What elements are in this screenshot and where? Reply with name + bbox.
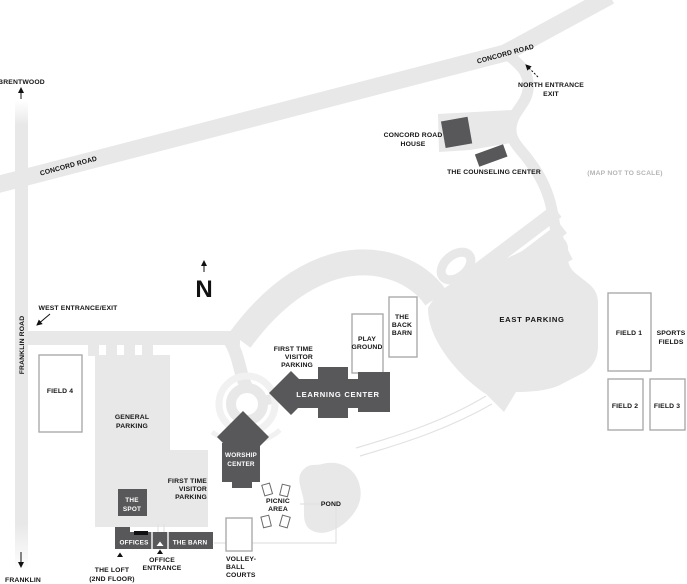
offices-label: OFFICES [119,540,149,547]
general-parking-label-2: PARKING [116,423,148,430]
map-note: (MAP NOT TO SCALE) [587,170,662,177]
ftv-north-label-2: VISITOR [285,354,313,361]
parking-stub [124,343,135,356]
ftv-south-label-2: VISITOR [179,486,207,493]
concord-house-label-1: CONCORD ROAD [384,132,443,139]
counseling-center-label: THE COUNSELING CENTER [447,169,541,176]
office-entrance-label-2: ENTRANCE [143,565,182,572]
field1-label: FIELD 1 [616,330,642,337]
back-barn-label-3: BARN [392,330,412,337]
brentwood-label: BRENTWOOD [0,79,45,86]
campus-map: BRENTWOOD FRANKLIN CONCORD ROAD CONCORD … [0,0,687,584]
office-entrance-caret [157,550,163,555]
east-parking-lot [428,236,598,412]
concord-road-house-building [441,117,472,148]
back-barn-label-2: BACK [392,322,412,329]
east-parking-label: EAST PARKING [499,315,564,324]
sports-fields-label-1: SPORTS [657,330,686,337]
the-spot-label-1: THE [125,497,139,504]
field2-label: FIELD 2 [612,403,638,410]
field3-label: FIELD 3 [654,403,680,410]
picnic-label-2: AREA [268,506,288,513]
franklin-city-label: FRANKLIN [5,577,41,584]
pond-shape [299,463,360,533]
loft-caret [117,553,123,558]
learning-center-label: LEARNING CENTER [296,390,380,399]
sports-fields-label-2: FIELDS [658,339,683,346]
worship-center-label-2: CENTER [227,461,255,468]
offices-roof-detail [134,531,148,535]
ftv-north-label-1: FIRST TIME [274,346,314,353]
parking-stub [142,343,153,356]
north-entrance-label-2: EXIT [543,91,559,98]
ftv-south-label-1: FIRST TIME [168,478,208,485]
general-parking-label-1: GENERAL [115,414,149,421]
volleyball-label-1: VOLLEY- [226,556,256,563]
field4-label: FIELD 4 [47,388,73,395]
parking-stub [106,343,117,356]
back-barn-label-1: THE [395,314,409,321]
play-ground-label-2: GROUND [351,344,382,351]
volleyball-label-2: BALL [226,564,245,571]
general-parking-lot [95,355,208,527]
north-entrance-label-1: NORTH ENTRANCE [518,82,584,89]
franklin-road-label: FRANKLIN ROAD [19,316,26,375]
play-ground-label-1: PLAY [358,336,376,343]
picnic-label-1: PICNIC [266,498,290,505]
concord-house-label-2: HOUSE [401,141,426,148]
ftv-south-label-3: PARKING [175,494,207,501]
ftv-north-label-3: PARKING [281,362,313,369]
volleyball-label-3: COURTS [226,572,256,579]
pond-label: POND [321,501,341,508]
volleyball-box [226,518,252,551]
west-entrance-label: WEST ENTRANCE/EXIT [39,305,119,312]
worship-center-label-1: WORSHIP [225,452,257,459]
parking-stub [88,343,99,356]
the-loft-label-2: (2ND FLOOR) [89,576,134,583]
the-spot-label-2: SPOT [123,506,141,513]
west-entrance-road [28,331,240,345]
compass-n: N [195,276,212,303]
the-barn-label: THE BARN [173,540,208,547]
office-entrance-label-1: OFFICE [149,557,175,564]
the-loft-label-1: THE LOFT [95,567,130,574]
west-entrance-arrow [37,314,50,325]
